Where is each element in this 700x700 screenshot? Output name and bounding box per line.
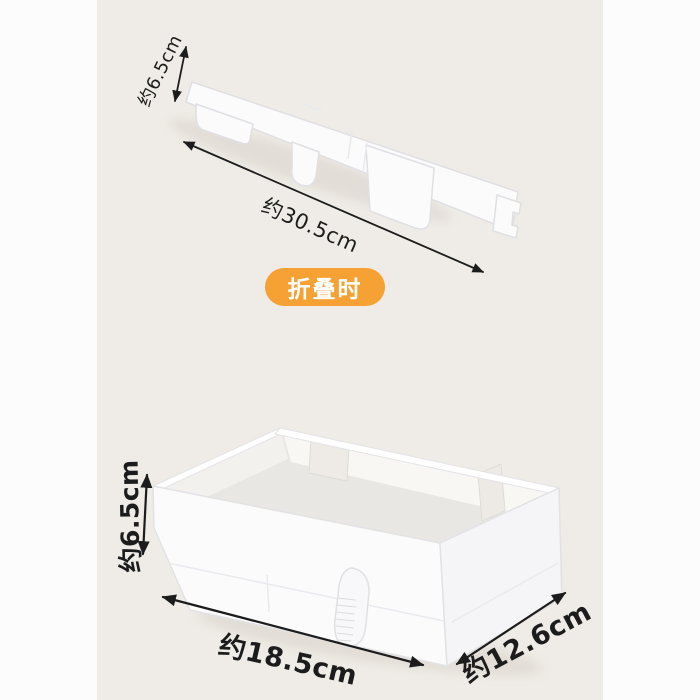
product-dimension-image: 约6.5cm 约30.5cm 约6.5cm 约18.5cm 约12.6cm 折叠… bbox=[0, 0, 700, 700]
unfolded-product-illustration bbox=[153, 428, 562, 666]
folded-state-badge: 折叠时 bbox=[265, 268, 385, 306]
folded-endcap-clip bbox=[493, 195, 521, 238]
unfolded-height-label: 约6.5cm bbox=[117, 459, 144, 573]
product-illustrations bbox=[0, 0, 700, 700]
folded-product-illustration bbox=[186, 82, 521, 238]
folded-right-flap bbox=[366, 145, 434, 229]
